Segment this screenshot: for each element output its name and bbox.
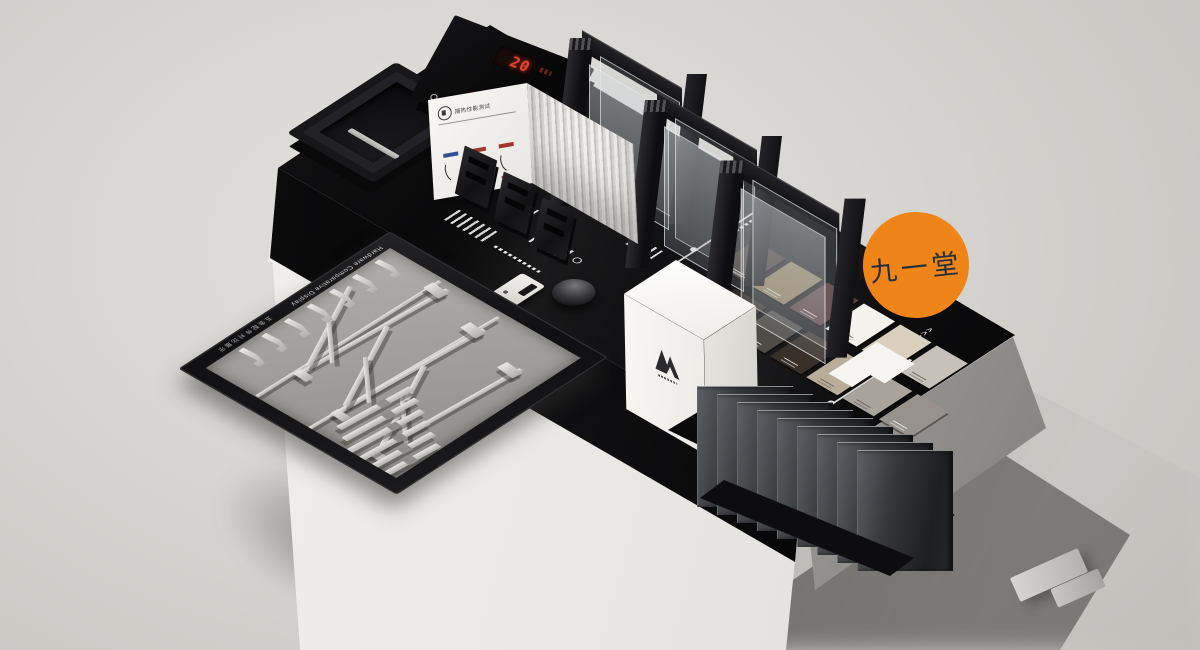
- brand-badge-label: 九一堂: [868, 241, 965, 290]
- led-unit-mark: [539, 67, 553, 76]
- module-logo-icon: [437, 105, 452, 121]
- gauge-color-bar: [499, 142, 514, 148]
- gauge-color-bar: [443, 151, 458, 157]
- gauge-needle: [497, 148, 517, 174]
- led-display-top: 20: [492, 46, 539, 78]
- corner-cap: [719, 160, 746, 173]
- stay-foot: [293, 369, 314, 382]
- corner-cap: [644, 100, 669, 112]
- module-label: 隔热性能测试: [454, 101, 490, 115]
- swatch-label: [820, 378, 835, 387]
- switch-dot: [503, 290, 509, 294]
- tray-metal-bar: [347, 128, 401, 159]
- floor-hardware-piece: [1012, 548, 1122, 628]
- corner-cap: [569, 38, 594, 50]
- swatch-label: [893, 420, 908, 429]
- swatch-label: [912, 372, 927, 381]
- stay-bracket: [497, 362, 523, 378]
- stay-bracket: [423, 282, 449, 298]
- led-value-top: 20: [492, 46, 539, 78]
- studio-scene: <<< Hardware Comparative Display 五金配件对比展…: [0, 0, 1200, 650]
- swatch-label: [856, 399, 871, 408]
